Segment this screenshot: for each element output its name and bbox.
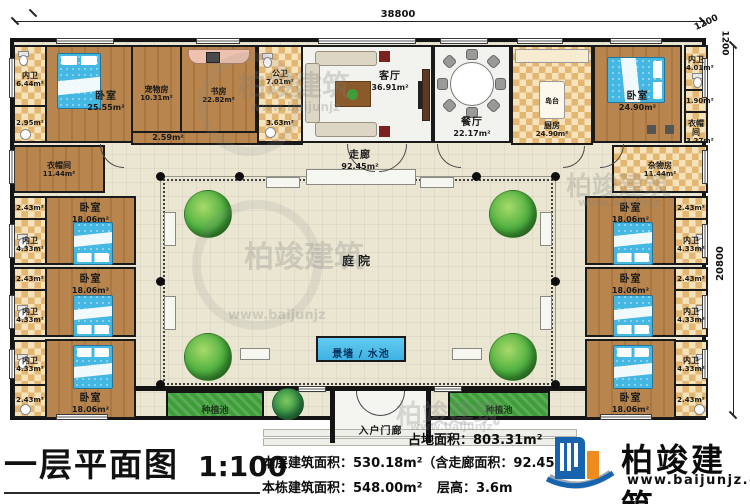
floor-plan-page: 38800 1200 1200 20800 内卫6.44m² 2.95m² 卧室… [0, 0, 750, 504]
room-area: 11.44m² [614, 170, 706, 178]
room-small-243: 2.43m² [13, 384, 47, 418]
room-area: 3.63m² [259, 119, 301, 127]
room-label: 卧室 [595, 91, 680, 103]
window [196, 38, 240, 44]
room-label: 走廊 [320, 150, 400, 162]
room-area: 18.06m² [47, 405, 134, 414]
plan-title-text: 一层平面图 [4, 445, 179, 484]
room-area: 7.01m² [259, 78, 301, 86]
column-icon [551, 172, 560, 181]
palm-icon [272, 388, 304, 420]
room-label: 内卫 [686, 55, 706, 64]
bench [540, 296, 552, 330]
column-icon [156, 277, 165, 286]
column-icon [156, 380, 165, 389]
column-icon [156, 172, 165, 181]
chair-icon [466, 49, 478, 60]
sofa-icon [305, 63, 320, 123]
room-bedroom-e2: 卧室18.06m² [585, 267, 676, 337]
room-label: 卧室 [47, 274, 134, 286]
window [610, 38, 662, 44]
company-name: 柏竣建筑 [621, 435, 748, 504]
room-label: 入户门廊 [359, 426, 403, 437]
room-label: 内卫 [676, 236, 706, 245]
room-bedroom-e3: 卧室18.06m² [585, 339, 676, 419]
bed-icon [613, 295, 653, 337]
sink-icon [694, 404, 705, 415]
bench [164, 296, 176, 330]
planter-label: 种植池 [485, 406, 512, 416]
dimension-offset-a: 1200 [693, 13, 720, 33]
plan-title: 一层平面图 1:100 [4, 438, 260, 494]
chair-icon [486, 54, 502, 70]
room-label: 内卫 [15, 71, 45, 80]
chair-icon [442, 54, 458, 70]
room-bedroom-e1: 卧室18.06m² [585, 196, 676, 265]
planter-right: 种植池 [448, 391, 550, 418]
dimension-line-right [733, 45, 734, 415]
room-label: 客厅 [349, 71, 431, 83]
room-area: 2.43m² [676, 275, 706, 283]
sink-icon [20, 404, 31, 415]
room-label: 餐厅 [435, 117, 509, 129]
bed-icon [613, 345, 653, 389]
room-area: 4.33m² [15, 316, 45, 324]
room-small-243: 2.43m² [13, 196, 47, 220]
column-icon [551, 380, 560, 389]
bench [540, 212, 552, 246]
stat-land-area: 占地面积：803.31m² [408, 429, 542, 448]
chair-icon [437, 78, 448, 90]
room-area: 2.43m² [15, 275, 45, 283]
room-area: 18.06m² [47, 215, 134, 224]
chair-icon [647, 125, 656, 134]
room-area: 4.33m² [676, 245, 706, 253]
chair-icon [495, 78, 506, 90]
room-label: 书房 [182, 87, 255, 96]
dimension-height: 20800 [715, 246, 726, 281]
room-area: 2.43m² [15, 396, 45, 404]
column-icon [235, 172, 244, 181]
bench [420, 177, 454, 188]
room-area: 92.45m² [320, 162, 400, 171]
room-label: 内卫 [676, 356, 706, 365]
chair-icon [442, 98, 458, 114]
corner-mark [29, 9, 37, 17]
room-area: 2.43m² [15, 204, 45, 212]
stat-building-value: 本栋建筑面积：548.00m² [262, 481, 422, 496]
room-small-363: 3.63m² [257, 105, 303, 143]
room-label: 衣帽间 [15, 161, 103, 170]
room-bath-nw: 内卫6.44m² [13, 45, 47, 107]
dimension-line-top [14, 21, 704, 22]
room-bedroom-master: 卧室25.55m² [45, 45, 133, 143]
room-area: 4.33m² [15, 365, 45, 373]
kitchen-island: 岛台 [539, 81, 565, 119]
room-area: 1.90m² [686, 97, 706, 105]
tree-icon [489, 190, 537, 238]
room-area: 36.91m² [349, 83, 431, 92]
room-bedroom-ne: 卧室24.90m² [593, 45, 682, 143]
sink-icon [265, 127, 276, 138]
tree-icon [184, 333, 232, 381]
stat-building-area: 本栋建筑面积：548.00m² 层高：3.6m [262, 477, 513, 496]
cushion-icon [379, 126, 390, 137]
chair-icon [486, 98, 502, 114]
room-dining: 餐厅22.17m² [433, 45, 511, 143]
room-label: 衣帽间 [686, 119, 706, 137]
sofa-icon [315, 122, 377, 137]
room-kitchen: 岛台 厨房24.90m² [511, 45, 593, 145]
sink-icon [20, 129, 31, 140]
bed-icon [73, 295, 113, 337]
bench [266, 177, 300, 188]
bed-icon [73, 345, 113, 389]
room-storage-e: 杂物房11.44m² [612, 145, 708, 193]
room-area: 3.27m² [686, 137, 706, 145]
column-icon [551, 277, 560, 286]
room-area: 4.33m² [676, 365, 706, 373]
bed-icon [613, 222, 653, 265]
room-closet-w: 衣帽间11.44m² [13, 145, 105, 193]
island-label: 岛台 [545, 97, 559, 105]
room-label: 内卫 [15, 356, 45, 365]
window [56, 38, 114, 44]
dimension-offset-b: 1200 [720, 30, 730, 55]
room-label: 卧室 [587, 274, 674, 286]
room-bedroom-w3: 卧室18.06m² [45, 339, 136, 419]
room-study: 书房22.82m² [180, 45, 257, 133]
stat-storey-height: 层高：3.6m [437, 481, 513, 496]
room-label: 卧室 [587, 203, 674, 215]
room-small-243: 2.43m² [13, 267, 47, 291]
room-area: 6.44m² [15, 80, 45, 88]
toilet-icon [18, 51, 29, 66]
dimension-width: 38800 [338, 9, 458, 20]
company-logo: 柏竣建筑 www.baijunjz.com [543, 427, 748, 501]
room-area: 18.06m² [587, 405, 674, 414]
company-logo-icon [543, 427, 619, 497]
room-area: 2.43m² [676, 204, 706, 212]
room-label: 厨房 [513, 121, 591, 130]
room-label: 宠物房 [133, 85, 180, 94]
window [298, 386, 326, 392]
room-label: 内卫 [15, 307, 45, 316]
room-area: 4.01m² [686, 64, 706, 72]
pool-label: 景墙 / 水池 [332, 349, 390, 360]
planter-label: 种植池 [201, 406, 228, 416]
room-area: 11.44m² [15, 170, 103, 178]
company-url: www.baijunjz.com [627, 473, 750, 488]
room-area: 2.59m² [133, 133, 203, 142]
window [440, 38, 488, 44]
room-area: 24.90m² [595, 103, 680, 112]
stat-floor-area: 本层建筑面积：530.18m²（含走廊面积：92.45m²） [262, 452, 587, 471]
room-label: 内卫 [15, 236, 45, 245]
bench [240, 348, 270, 360]
computer-icon [206, 52, 220, 63]
room-living: 客厅36.91m² [301, 45, 433, 143]
toilet-icon [262, 53, 273, 68]
bench [164, 212, 176, 246]
room-bath-w1: 内卫4.33m² [13, 218, 47, 265]
room-area: 22.82m² [182, 96, 255, 104]
room-area: 4.33m² [15, 245, 45, 253]
bed-icon [73, 222, 113, 265]
room-area: 4.33m² [676, 316, 706, 324]
room-pet: 宠物房10.31m² [131, 45, 182, 133]
room-small-243: 2.43m² [674, 384, 708, 418]
sofa-icon [315, 51, 377, 66]
room-label: 卧室 [47, 203, 134, 215]
courtyard-label: 庭院 [330, 255, 386, 269]
room-label: 卧室 [47, 393, 134, 405]
room-area: 18.06m² [587, 286, 674, 295]
room-area: 22.17m² [435, 129, 509, 138]
room-small-243: 2.43m² [674, 267, 708, 291]
room-area: 18.06m² [47, 286, 134, 295]
room-area: 10.31m² [133, 94, 180, 102]
room-bath-public: 公卫7.01m² [257, 45, 303, 107]
tree-icon [489, 333, 537, 381]
dining-table-icon [450, 62, 494, 106]
room-bath-w3: 内卫4.33m² [13, 340, 47, 386]
room-small-243: 2.43m² [674, 196, 708, 220]
cushion-icon [379, 51, 390, 62]
window [517, 38, 563, 44]
window [318, 38, 416, 44]
room-area: 24.90m² [513, 130, 591, 138]
room-area: 2.43m² [676, 396, 706, 404]
window [600, 414, 652, 420]
room-bath-e3: 内卫4.33m² [674, 340, 708, 386]
window [56, 414, 108, 420]
room-small-295: 2.95m² [13, 105, 47, 143]
room-bedroom-w1: 卧室18.06m² [45, 196, 136, 265]
room-label: 杂物房 [614, 161, 706, 170]
window [434, 386, 462, 392]
room-label: 卧室 [587, 393, 674, 405]
pool: 景墙 / 水池 [316, 336, 406, 362]
chair-icon [665, 125, 674, 134]
room-closet-ne: 衣帽间3.27m² [684, 111, 708, 143]
planter-bench [306, 169, 416, 185]
bench [452, 348, 482, 360]
tree-icon [184, 190, 232, 238]
column-icon [472, 172, 481, 181]
room-label: 庭院 [330, 255, 386, 269]
planter-left: 种植池 [166, 391, 264, 418]
room-label: 公卫 [259, 69, 301, 78]
corridor-label: 走廊 92.45m² [320, 150, 400, 171]
room-bedroom-w2: 卧室18.06m² [45, 267, 136, 337]
room-bath-w2: 内卫4.33m² [13, 289, 47, 337]
room-label: 内卫 [676, 307, 706, 316]
room-area: 18.06m² [587, 215, 674, 224]
counter-icon [515, 49, 589, 63]
room-area: 2.95m² [15, 119, 45, 127]
room-area: 25.55m² [75, 103, 137, 112]
room-label: 卧室 [75, 91, 137, 103]
